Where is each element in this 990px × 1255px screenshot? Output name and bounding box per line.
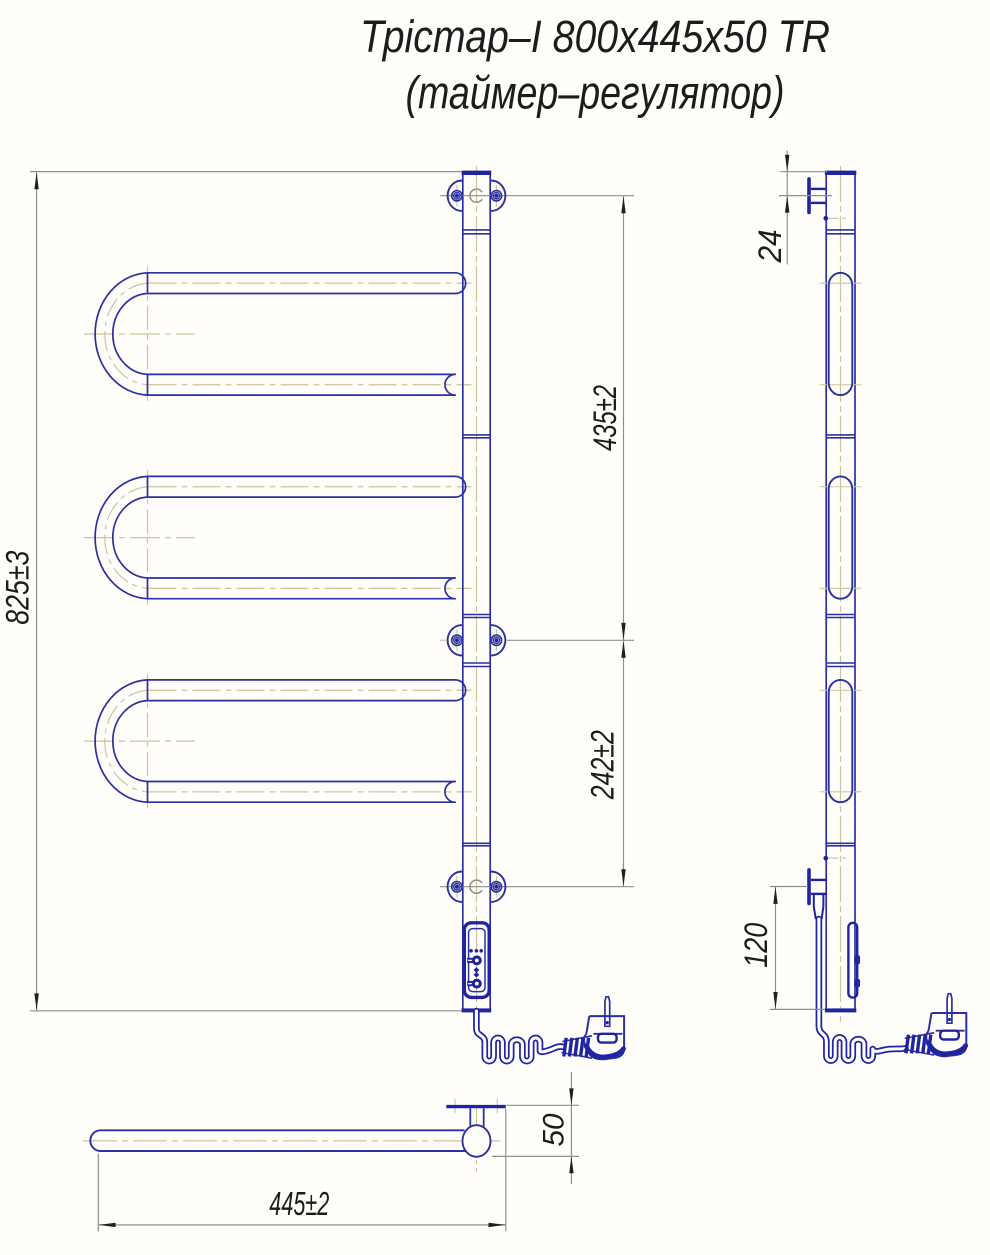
svg-text:24: 24 [752, 230, 788, 264]
svg-text:(таймер–регулятор): (таймер–регулятор) [406, 67, 785, 119]
svg-text:Трістар–І 800х445х50 TR: Трістар–І 800х445х50 TR [360, 11, 830, 62]
svg-text:825±3: 825±3 [0, 551, 36, 625]
svg-text:242±2: 242±2 [585, 730, 621, 800]
svg-text:120: 120 [738, 923, 774, 968]
svg-text:435±2: 435±2 [587, 385, 623, 451]
svg-text:445±2: 445±2 [269, 1185, 329, 1222]
svg-text:50: 50 [538, 1113, 571, 1146]
